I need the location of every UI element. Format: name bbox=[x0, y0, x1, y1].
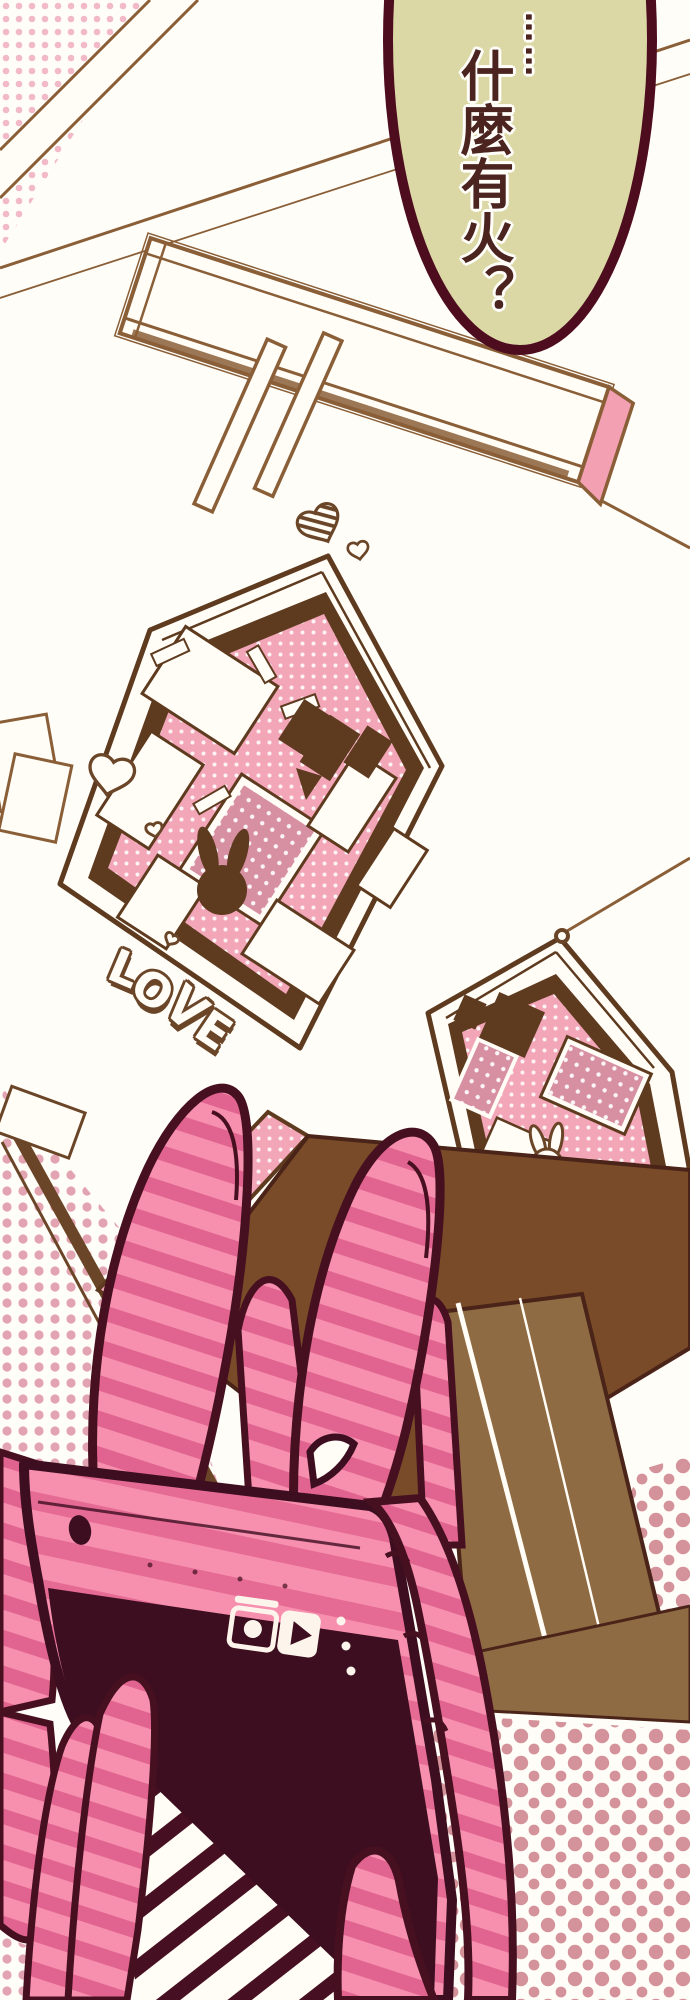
play-icon bbox=[276, 1609, 322, 1658]
bubble-ellipsis: …… bbox=[512, 2, 558, 362]
hanging-hook bbox=[556, 930, 568, 942]
manga-panel: …… 什麼有火？ LOVE bbox=[0, 0, 690, 2000]
bubble-main-text: 什麼有火？ bbox=[452, 2, 512, 362]
panel-artwork bbox=[0, 0, 690, 2000]
speech-bubble-text: …… 什麼有火？ bbox=[452, 2, 558, 362]
